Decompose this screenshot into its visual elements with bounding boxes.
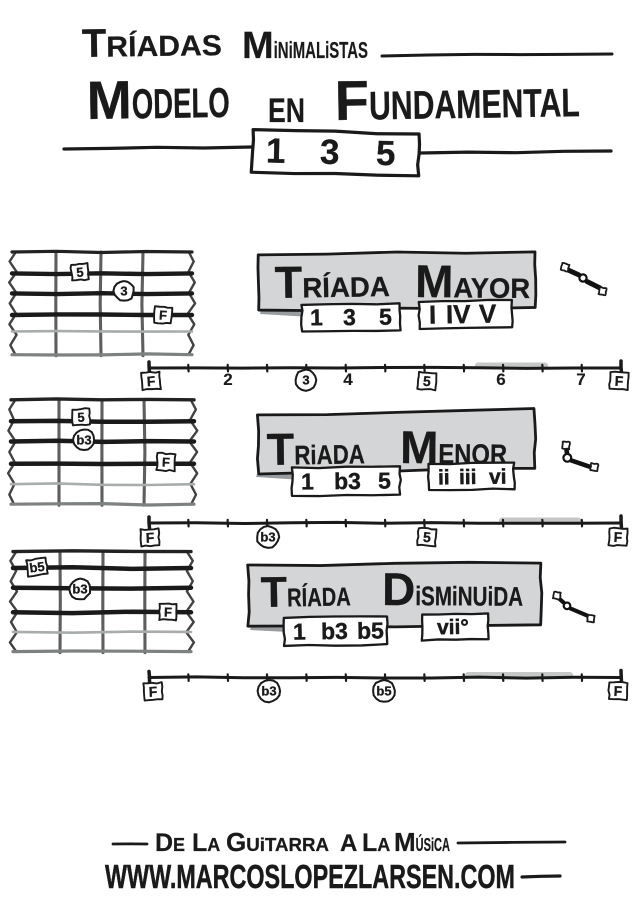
svg-text:UiTARRA: UiTARRA [246, 835, 329, 855]
svg-text:iSMiNUiDA: iSMiNUiDA [415, 581, 523, 612]
svg-text:M: M [242, 25, 274, 67]
svg-text:RÍADA: RÍADA [302, 271, 390, 304]
svg-text:F: F [145, 529, 155, 545]
svg-text:5: 5 [379, 304, 392, 330]
svg-text:V: V [479, 298, 498, 328]
svg-text:b5: b5 [376, 684, 391, 699]
svg-text:D: D [382, 563, 416, 615]
svg-text:UNDAMENTAL: UNDAMENTAL [369, 81, 580, 128]
svg-text:D: D [155, 829, 173, 857]
svg-text:T: T [266, 424, 294, 475]
svg-text:L: L [192, 829, 207, 857]
svg-text:3: 3 [343, 304, 356, 330]
svg-text:F: F [334, 68, 369, 132]
svg-text:vii°: vii° [437, 616, 469, 639]
svg-text:1: 1 [293, 618, 306, 644]
svg-text:1: 1 [310, 304, 323, 330]
svg-text:WWW.MARCOSLOPEZLARSEN.COM: WWW.MARCOSLOPEZLARSEN.COM [105, 858, 515, 895]
svg-text:IV: IV [446, 299, 472, 329]
svg-text:b3: b3 [334, 468, 361, 494]
svg-text:T: T [82, 22, 107, 66]
svg-text:ii: ii [438, 466, 450, 489]
svg-text:F: F [164, 605, 173, 620]
svg-text:EN: EN [268, 92, 305, 130]
svg-text:L: L [362, 829, 377, 857]
svg-text:iii: iii [459, 466, 477, 489]
svg-text:b5: b5 [28, 559, 45, 576]
svg-text:I: I [429, 300, 437, 330]
svg-text:M: M [86, 70, 132, 131]
svg-text:F: F [146, 373, 156, 390]
svg-text:RÍADAS: RÍADAS [106, 28, 222, 64]
svg-text:F: F [614, 373, 624, 389]
svg-text:b3: b3 [72, 582, 87, 597]
svg-text:vi: vi [489, 466, 507, 489]
svg-text:G: G [226, 827, 246, 857]
svg-text:3: 3 [320, 133, 340, 172]
svg-text:b3: b3 [261, 684, 276, 699]
svg-text:b3: b3 [321, 618, 348, 644]
svg-text:5: 5 [378, 468, 391, 494]
svg-text:RÍADA: RÍADA [287, 581, 351, 612]
svg-text:T: T [274, 257, 302, 308]
svg-text:E: E [173, 835, 185, 855]
svg-text:ODELO: ODELO [131, 79, 230, 127]
svg-text:F: F [158, 307, 167, 323]
svg-text:M: M [394, 827, 416, 857]
svg-text:7: 7 [576, 370, 585, 389]
svg-text:iNiMALiSTAS: iNiMALiSTAS [274, 37, 368, 63]
svg-text:b3: b3 [260, 530, 275, 545]
svg-text:3: 3 [120, 284, 127, 299]
svg-text:b5: b5 [357, 617, 384, 643]
svg-text:A: A [377, 835, 390, 855]
svg-text:F: F [613, 683, 623, 699]
svg-text:F: F [613, 529, 623, 545]
svg-text:5: 5 [423, 529, 432, 546]
svg-text:A: A [207, 835, 220, 855]
svg-text:4: 4 [343, 370, 353, 389]
svg-text:5: 5 [422, 373, 431, 390]
svg-text:ÚSiCA: ÚSiCA [416, 834, 450, 855]
svg-text:5: 5 [376, 134, 396, 173]
svg-text:F: F [148, 683, 158, 699]
svg-text:5: 5 [76, 264, 85, 280]
svg-text:2: 2 [223, 370, 232, 389]
svg-text:6: 6 [496, 370, 505, 389]
svg-text:A: A [340, 830, 357, 857]
svg-text:5: 5 [77, 410, 85, 425]
svg-text:1: 1 [301, 468, 314, 494]
svg-text:F: F [162, 454, 171, 469]
svg-text:T: T [260, 569, 287, 617]
svg-text:1: 1 [266, 131, 286, 170]
svg-text:b3: b3 [76, 433, 91, 448]
svg-text:3: 3 [302, 373, 309, 388]
